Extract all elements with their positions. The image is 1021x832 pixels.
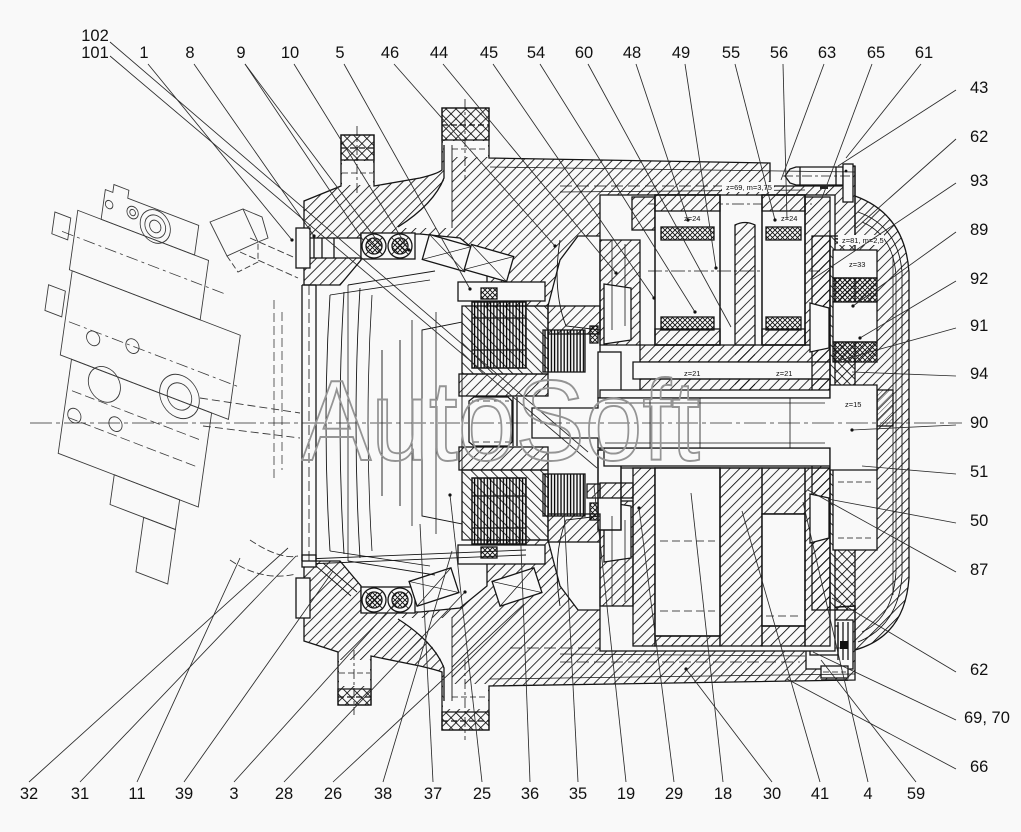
- svg-text:AutoSoft: AutoSoft: [302, 358, 700, 485]
- svg-text:92: 92: [970, 270, 988, 288]
- svg-text:5: 5: [335, 44, 344, 62]
- svg-text:69, 70: 69, 70: [964, 709, 1010, 727]
- svg-text:28: 28: [275, 785, 293, 803]
- svg-text:10: 10: [281, 44, 299, 62]
- svg-text:102: 102: [81, 27, 109, 45]
- svg-text:9: 9: [236, 44, 245, 62]
- svg-text:51: 51: [970, 463, 988, 481]
- svg-text:89: 89: [970, 221, 988, 239]
- svg-text:90: 90: [970, 414, 988, 432]
- svg-text:32: 32: [20, 785, 38, 803]
- svg-text:87: 87: [970, 561, 988, 579]
- svg-text:48: 48: [623, 44, 641, 62]
- svg-text:101: 101: [81, 44, 109, 62]
- svg-text:66: 66: [970, 758, 988, 776]
- svg-text:43: 43: [970, 79, 988, 97]
- svg-text:26: 26: [324, 785, 342, 803]
- svg-text:z=15: z=15: [845, 400, 861, 409]
- svg-text:61: 61: [915, 44, 933, 62]
- svg-text:25: 25: [473, 785, 491, 803]
- svg-text:z=33: z=33: [849, 260, 865, 269]
- svg-text:18: 18: [714, 785, 732, 803]
- svg-text:30: 30: [763, 785, 781, 803]
- svg-text:19: 19: [617, 785, 635, 803]
- svg-text:91: 91: [970, 317, 988, 335]
- svg-text:46: 46: [381, 44, 399, 62]
- svg-text:35: 35: [569, 785, 587, 803]
- svg-text:62: 62: [970, 128, 988, 146]
- svg-text:4: 4: [863, 785, 872, 803]
- svg-text:50: 50: [970, 512, 988, 530]
- svg-text:z=69, m=3,75: z=69, m=3,75: [726, 183, 772, 192]
- svg-text:1: 1: [139, 44, 148, 62]
- svg-text:z=81, m=2,5: z=81, m=2,5: [842, 236, 884, 245]
- svg-text:31: 31: [71, 785, 89, 803]
- svg-text:29: 29: [665, 785, 683, 803]
- svg-text:38: 38: [374, 785, 392, 803]
- svg-text:z=21: z=21: [776, 369, 792, 378]
- svg-text:59: 59: [907, 785, 925, 803]
- svg-text:39: 39: [175, 785, 193, 803]
- svg-text:63: 63: [818, 44, 836, 62]
- svg-text:41: 41: [811, 785, 829, 803]
- svg-text:49: 49: [672, 44, 690, 62]
- svg-text:65: 65: [867, 44, 885, 62]
- svg-text:z=24: z=24: [781, 214, 797, 223]
- svg-text:45: 45: [480, 44, 498, 62]
- svg-text:44: 44: [430, 44, 448, 62]
- svg-text:93: 93: [970, 172, 988, 190]
- svg-text:56: 56: [770, 44, 788, 62]
- svg-text:54: 54: [527, 44, 545, 62]
- svg-text:3: 3: [229, 785, 238, 803]
- svg-text:8: 8: [185, 44, 194, 62]
- svg-text:37: 37: [424, 785, 442, 803]
- svg-text:36: 36: [521, 785, 539, 803]
- svg-text:11: 11: [128, 785, 145, 803]
- svg-text:94: 94: [970, 365, 988, 383]
- svg-text:62: 62: [970, 661, 988, 679]
- svg-text:55: 55: [722, 44, 740, 62]
- svg-text:60: 60: [575, 44, 593, 62]
